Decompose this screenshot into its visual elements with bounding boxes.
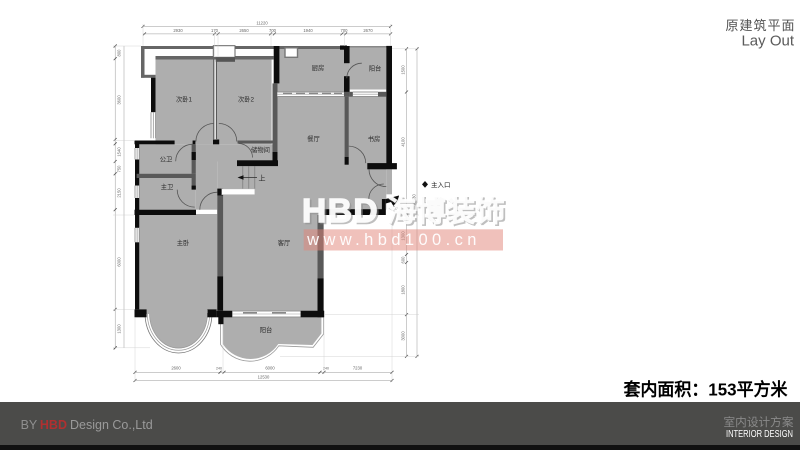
svg-text:1800: 1800	[401, 285, 406, 295]
svg-text:客厅: 客厅	[278, 238, 291, 247]
svg-text:餐厅: 餐厅	[307, 134, 320, 143]
svg-text:公卫: 公卫	[160, 156, 173, 164]
svg-text:主入口: 主入口	[431, 180, 451, 189]
svg-text:BY: BY	[21, 418, 38, 432]
svg-text:240: 240	[216, 367, 222, 371]
svg-text:2600: 2600	[171, 366, 181, 371]
svg-text:书房: 书房	[368, 134, 381, 143]
svg-text:3600: 3600	[117, 95, 122, 105]
svg-text:700: 700	[269, 28, 277, 33]
svg-text:1940: 1940	[303, 28, 313, 33]
svg-text:INTERIOR DESIGN: INTERIOR DESIGN	[726, 429, 793, 440]
svg-text:阳台: 阳台	[260, 325, 273, 334]
svg-text:170: 170	[211, 28, 219, 33]
svg-text:3000: 3000	[401, 331, 406, 341]
svg-text:1500: 1500	[401, 65, 406, 75]
svg-text:6000: 6000	[117, 257, 122, 267]
svg-text:2650: 2650	[239, 28, 249, 33]
svg-text:2930: 2930	[173, 28, 183, 33]
svg-text:上: 上	[259, 174, 266, 183]
svg-text:HBD: HBD	[40, 418, 67, 432]
svg-text:室内设计方案: 室内设计方案	[724, 415, 795, 429]
svg-text:Design Co.,Ltd: Design Co.,Ltd	[70, 418, 153, 432]
svg-text:750: 750	[117, 165, 122, 173]
svg-text:2150: 2150	[117, 188, 122, 198]
svg-text:次卧2: 次卧2	[238, 95, 255, 104]
svg-text:厨房: 厨房	[312, 63, 325, 72]
svg-text:Lay Out: Lay Out	[741, 33, 794, 50]
svg-text:2670: 2670	[363, 28, 373, 33]
svg-text:海博装饰: 海博装饰	[387, 195, 505, 228]
svg-text:原建筑平面: 原建筑平面	[725, 18, 795, 33]
svg-text:4100: 4100	[401, 137, 406, 147]
svg-text:7230: 7230	[353, 366, 363, 371]
svg-text:12530: 12530	[258, 375, 270, 380]
svg-text:HBD: HBD	[302, 193, 379, 230]
svg-text:储物间: 储物间	[251, 145, 270, 154]
svg-text:800: 800	[117, 49, 122, 57]
svg-text:600: 600	[401, 256, 406, 264]
svg-text:www.hbd100.cn: www.hbd100.cn	[306, 231, 481, 249]
svg-text:11220: 11220	[256, 20, 268, 25]
svg-text:主卫: 主卫	[161, 182, 174, 191]
svg-text:套内面积：153平方米: 套内面积：153平方米	[623, 380, 788, 400]
svg-text:1300: 1300	[117, 324, 122, 334]
svg-text:阳台: 阳台	[369, 64, 382, 73]
svg-text:次卧1: 次卧1	[176, 95, 193, 104]
svg-text:1540: 1540	[117, 147, 122, 157]
svg-text:6000: 6000	[265, 366, 275, 371]
svg-text:主卧: 主卧	[177, 238, 190, 247]
